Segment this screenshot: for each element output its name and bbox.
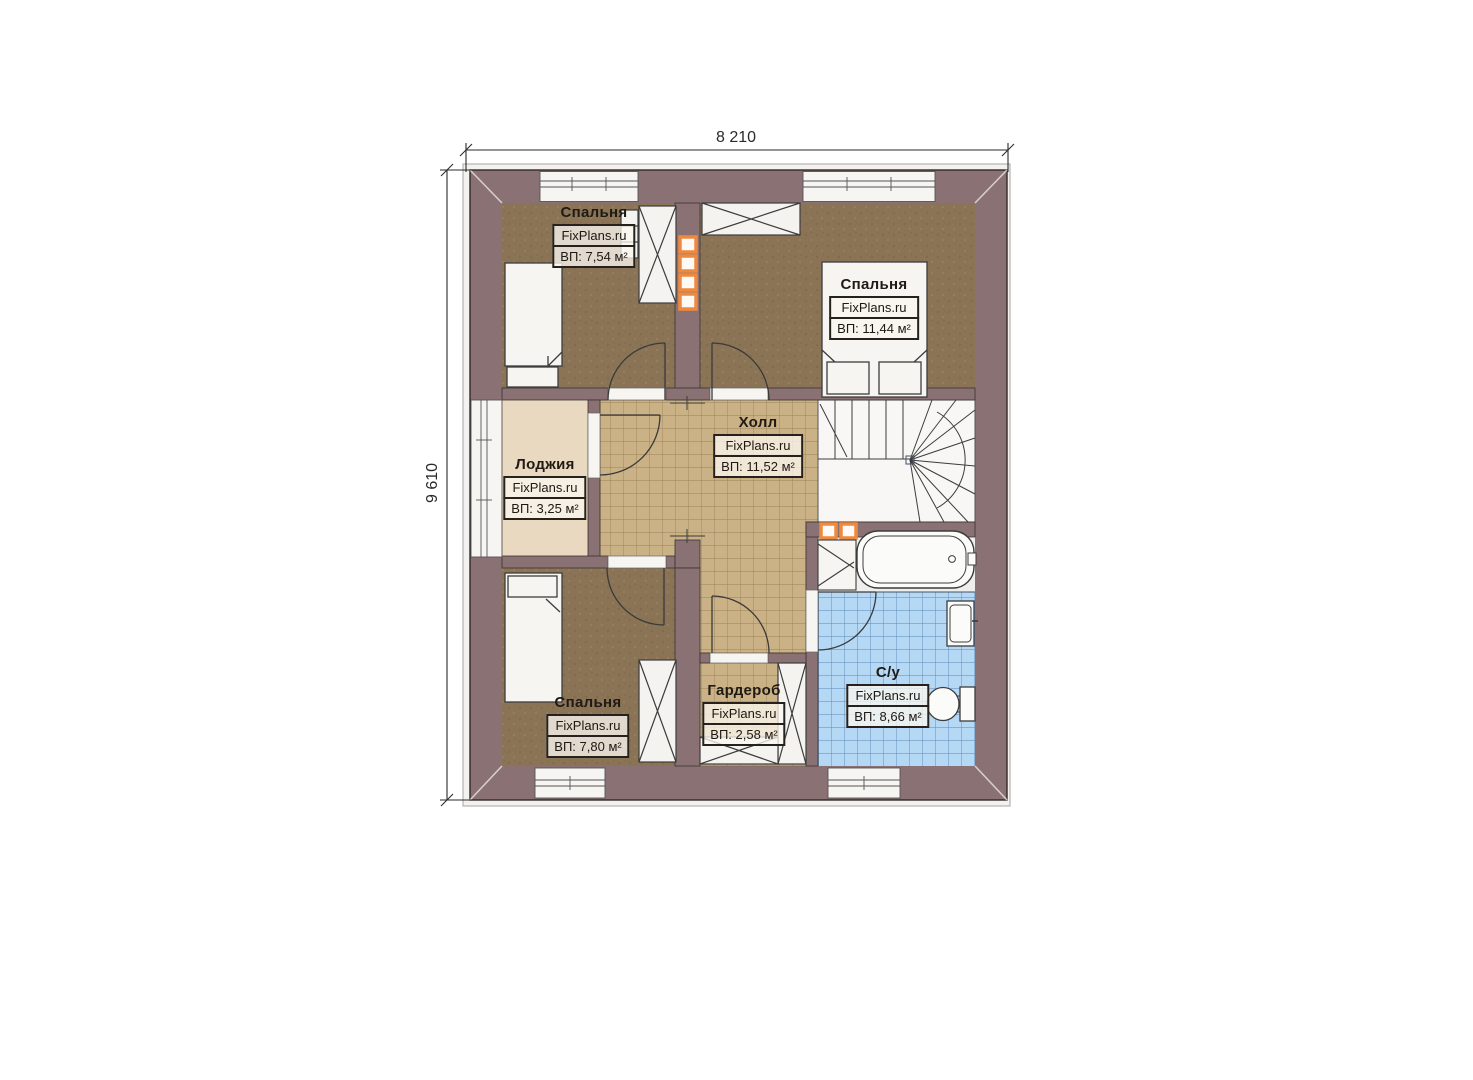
room-area: ВП: 7,54 м² bbox=[552, 245, 635, 268]
room-label-bedroom-top-right: Спальня FixPlans.ru ВП: 11,44 м² bbox=[829, 276, 919, 340]
room-name: Спальня bbox=[546, 694, 629, 711]
bathtub-icon bbox=[857, 531, 976, 588]
brand-watermark: FixPlans.ru bbox=[829, 296, 919, 319]
bed-single-top-left-icon bbox=[505, 263, 562, 387]
room-info-box: FixPlans.ru ВП: 7,80 м² bbox=[546, 714, 629, 758]
room-name: С/у bbox=[846, 664, 929, 681]
room-info-box: FixPlans.ru ВП: 3,25 м² bbox=[503, 476, 586, 520]
room-name: Гардероб bbox=[702, 682, 785, 699]
room-label-hall: Холл FixPlans.ru ВП: 11,52 м² bbox=[713, 414, 803, 478]
brand-watermark: FixPlans.ru bbox=[503, 476, 586, 499]
room-label-bathroom: С/у FixPlans.ru ВП: 8,66 м² bbox=[846, 664, 929, 728]
brand-watermark: FixPlans.ru bbox=[713, 434, 803, 457]
brand-watermark: FixPlans.ru bbox=[702, 702, 785, 725]
room-label-loggia: Лоджия FixPlans.ru ВП: 3,25 м² bbox=[503, 456, 586, 520]
room-name: Лоджия bbox=[503, 456, 586, 473]
bed-single-bottom-left-icon bbox=[505, 573, 562, 702]
room-name: Спальня bbox=[829, 276, 919, 293]
room-info-box: FixPlans.ru ВП: 8,66 м² bbox=[846, 684, 929, 728]
room-name: Холл bbox=[713, 414, 803, 431]
room-label-wardrobe: Гардероб FixPlans.ru ВП: 2,58 м² bbox=[702, 682, 785, 746]
closet-bottom-left-icon bbox=[639, 660, 676, 762]
dimension-width-label: 8 210 bbox=[716, 129, 756, 147]
floor-plan-svg bbox=[0, 0, 1473, 1080]
room-area: ВП: 3,25 м² bbox=[503, 497, 586, 520]
room-area: ВП: 7,80 м² bbox=[546, 735, 629, 758]
room-label-bedroom-bottom-left: Спальня FixPlans.ru ВП: 7,80 м² bbox=[546, 694, 629, 758]
room-area: ВП: 2,58 м² bbox=[702, 723, 785, 746]
brand-watermark: FixPlans.ru bbox=[552, 224, 635, 247]
room-info-box: FixPlans.ru ВП: 11,44 м² bbox=[829, 296, 919, 340]
brand-watermark: FixPlans.ru bbox=[846, 684, 929, 707]
room-area: ВП: 11,52 м² bbox=[713, 455, 803, 478]
window-bottom-right bbox=[828, 768, 900, 798]
room-info-box: FixPlans.ru ВП: 11,52 м² bbox=[713, 434, 803, 478]
closet-top-left-icon bbox=[639, 206, 676, 303]
window-top-left bbox=[540, 172, 638, 202]
washing-machine-icon bbox=[818, 540, 856, 590]
room-name: Спальня bbox=[552, 204, 635, 221]
room-area: ВП: 11,44 м² bbox=[829, 317, 919, 340]
floor-plan-canvas: 8 210 9 610 Спальня FixPlans.ru ВП: 7,54… bbox=[0, 0, 1473, 1080]
window-top-right bbox=[803, 172, 935, 202]
brand-watermark: FixPlans.ru bbox=[546, 714, 629, 737]
dimension-height-label: 9 610 bbox=[424, 463, 442, 503]
room-info-box: FixPlans.ru ВП: 7,54 м² bbox=[552, 224, 635, 268]
closet-top-right-icon bbox=[702, 203, 800, 235]
room-info-box: FixPlans.ru ВП: 2,58 м² bbox=[702, 702, 785, 746]
room-label-bedroom-top-left: Спальня FixPlans.ru ВП: 7,54 м² bbox=[552, 204, 635, 268]
toilet-icon bbox=[927, 687, 975, 721]
room-area: ВП: 8,66 м² bbox=[846, 705, 929, 728]
window-bottom-left bbox=[535, 768, 605, 798]
window-loggia-glazing bbox=[471, 400, 502, 557]
sink-icon bbox=[947, 601, 978, 646]
